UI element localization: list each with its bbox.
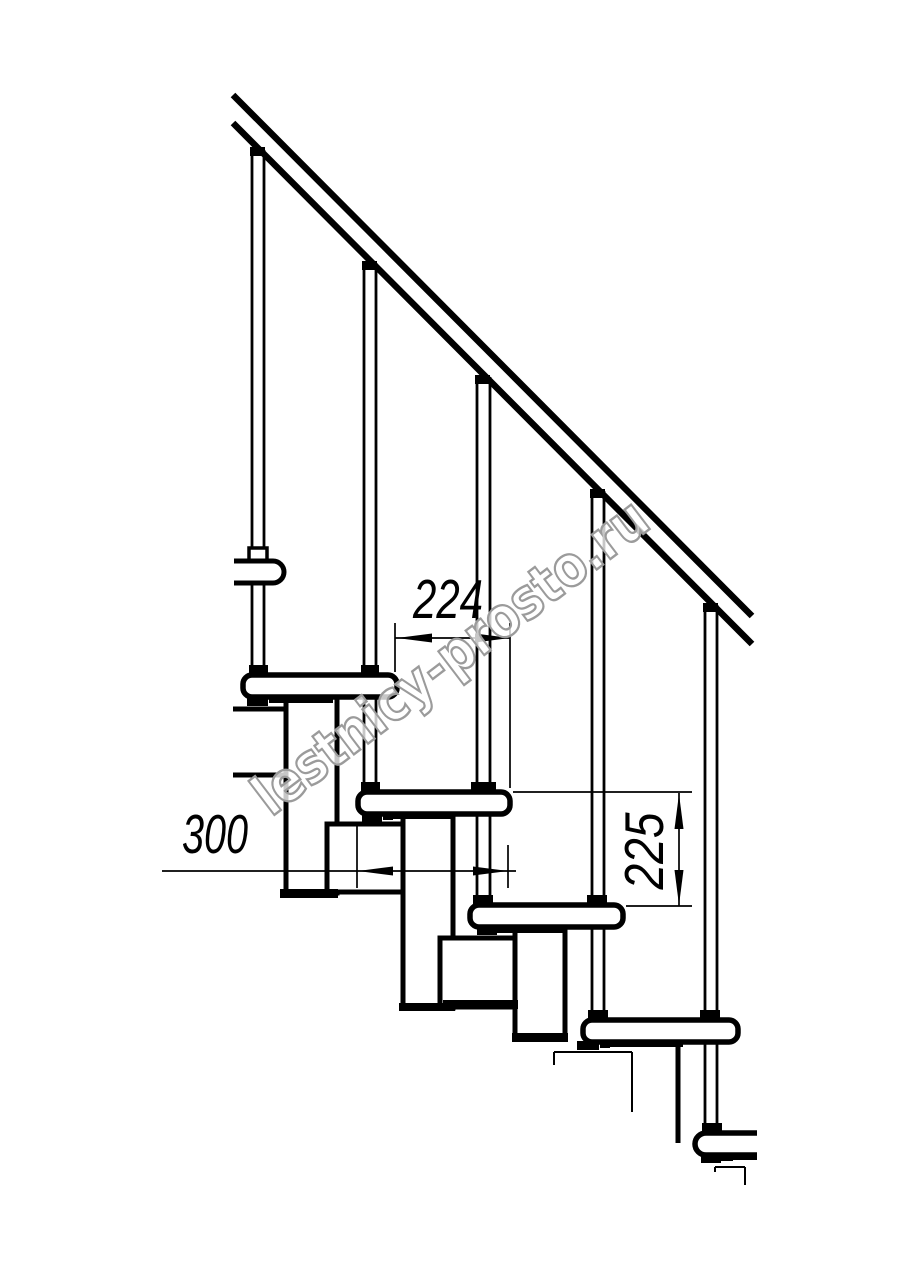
tread-5 bbox=[695, 1133, 757, 1155]
tread-cap-b2-t2 bbox=[361, 782, 380, 792]
dimension-225-arrow-down bbox=[675, 870, 684, 905]
tread-cap-b4-t3 bbox=[587, 895, 607, 905]
tread-cap-b3-t2 bbox=[471, 782, 496, 792]
tread-3 bbox=[470, 905, 623, 927]
handrail bbox=[233, 95, 752, 644]
module-neck-3 bbox=[515, 930, 565, 1036]
module-box-2 bbox=[440, 938, 517, 1007]
dimension-300-label: 300 bbox=[182, 803, 248, 865]
tread-4 bbox=[583, 1020, 738, 1042]
module-box-1 bbox=[327, 824, 403, 892]
technical-drawing-canvas: 224 300 225 lestnicy-prosto.ru bbox=[0, 0, 914, 1280]
tread-2 bbox=[358, 792, 510, 814]
dimension-225-label: 225 bbox=[613, 812, 675, 890]
tread-cap-b5-t4 bbox=[700, 1010, 720, 1020]
dimension-225-arrow-up bbox=[675, 794, 684, 829]
tread-cap-b4-t4 bbox=[588, 1010, 608, 1020]
watermark: lestnicy-prosto.ru bbox=[240, 486, 661, 829]
dimension-225: 225 bbox=[513, 792, 692, 906]
rail-end-bracket bbox=[234, 548, 284, 583]
tread-cap-b3-t3 bbox=[473, 895, 493, 905]
tread-mount-4 bbox=[577, 1041, 683, 1050]
baluster-5 bbox=[705, 605, 717, 1133]
baluster-1 bbox=[252, 150, 264, 675]
drawing-page: 224 300 225 lestnicy-prosto.ru bbox=[0, 0, 914, 1280]
tread-mount-5 bbox=[701, 1154, 757, 1163]
tread-cap-b1-t1 bbox=[249, 665, 268, 675]
tread-cap-b5-t5 bbox=[702, 1123, 722, 1133]
